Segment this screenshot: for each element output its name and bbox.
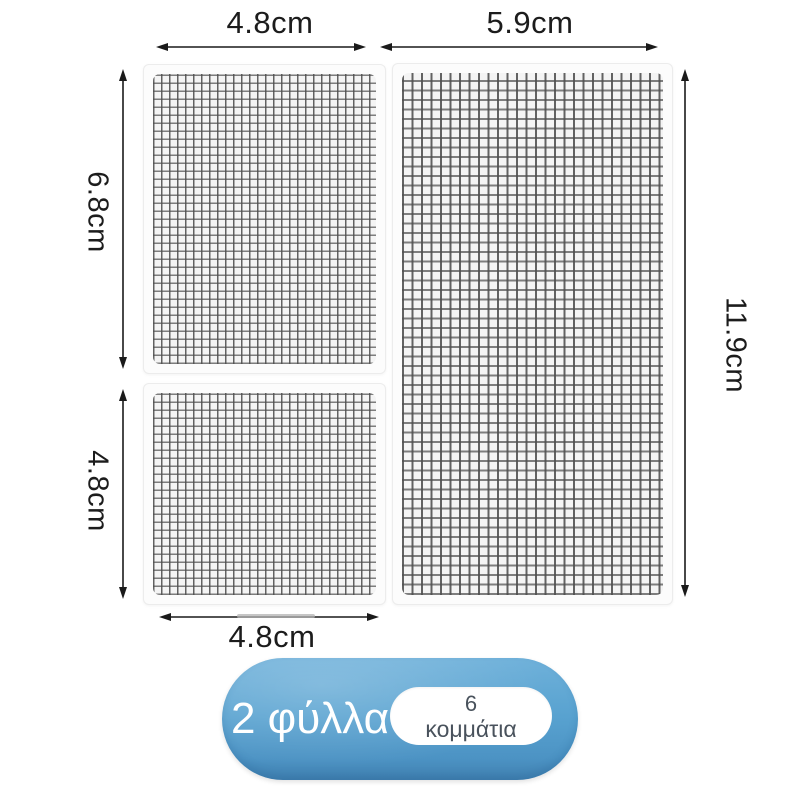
dimension-label-top-left-width: 4.8cm [227, 5, 314, 41]
width-arrow-top-right-icon [380, 40, 658, 54]
height-arrow-left-top-icon [116, 69, 130, 369]
mesh-panel-right [392, 63, 673, 605]
sheets-count-label: 2 φύλλα [230, 694, 390, 744]
pieces-pill: 6 κομμάτια [390, 687, 552, 745]
height-arrow-right-icon [678, 69, 692, 597]
pieces-label: κομμάτια [425, 716, 516, 742]
mesh-panel-bottom-left [143, 383, 386, 605]
bottom-arrow-overlap-mark [237, 614, 315, 618]
product-infographic: 4.8cm 5.9cm 6.8cm 4.8cm 11.9cm 4.8cm 2 φ… [0, 0, 800, 800]
width-arrow-top-left-icon [156, 40, 366, 54]
pieces-count: 6 [465, 691, 477, 716]
dimension-label-left-bottom-height: 4.8cm [81, 450, 114, 531]
height-arrow-left-bottom-icon [116, 389, 130, 599]
mesh-texture [153, 74, 376, 364]
dimension-label-top-right-width: 5.9cm [487, 5, 574, 41]
quantity-badge: 2 φύλλα 6 κομμάτια [222, 658, 578, 780]
dimension-label-right-height: 11.9cm [719, 297, 752, 393]
dimension-label-left-top-height: 6.8cm [81, 171, 114, 252]
dimension-label-bottom-width: 4.8cm [229, 619, 316, 655]
mesh-texture [402, 73, 663, 595]
mesh-panel-top-left [143, 64, 386, 374]
mesh-texture [153, 393, 376, 595]
